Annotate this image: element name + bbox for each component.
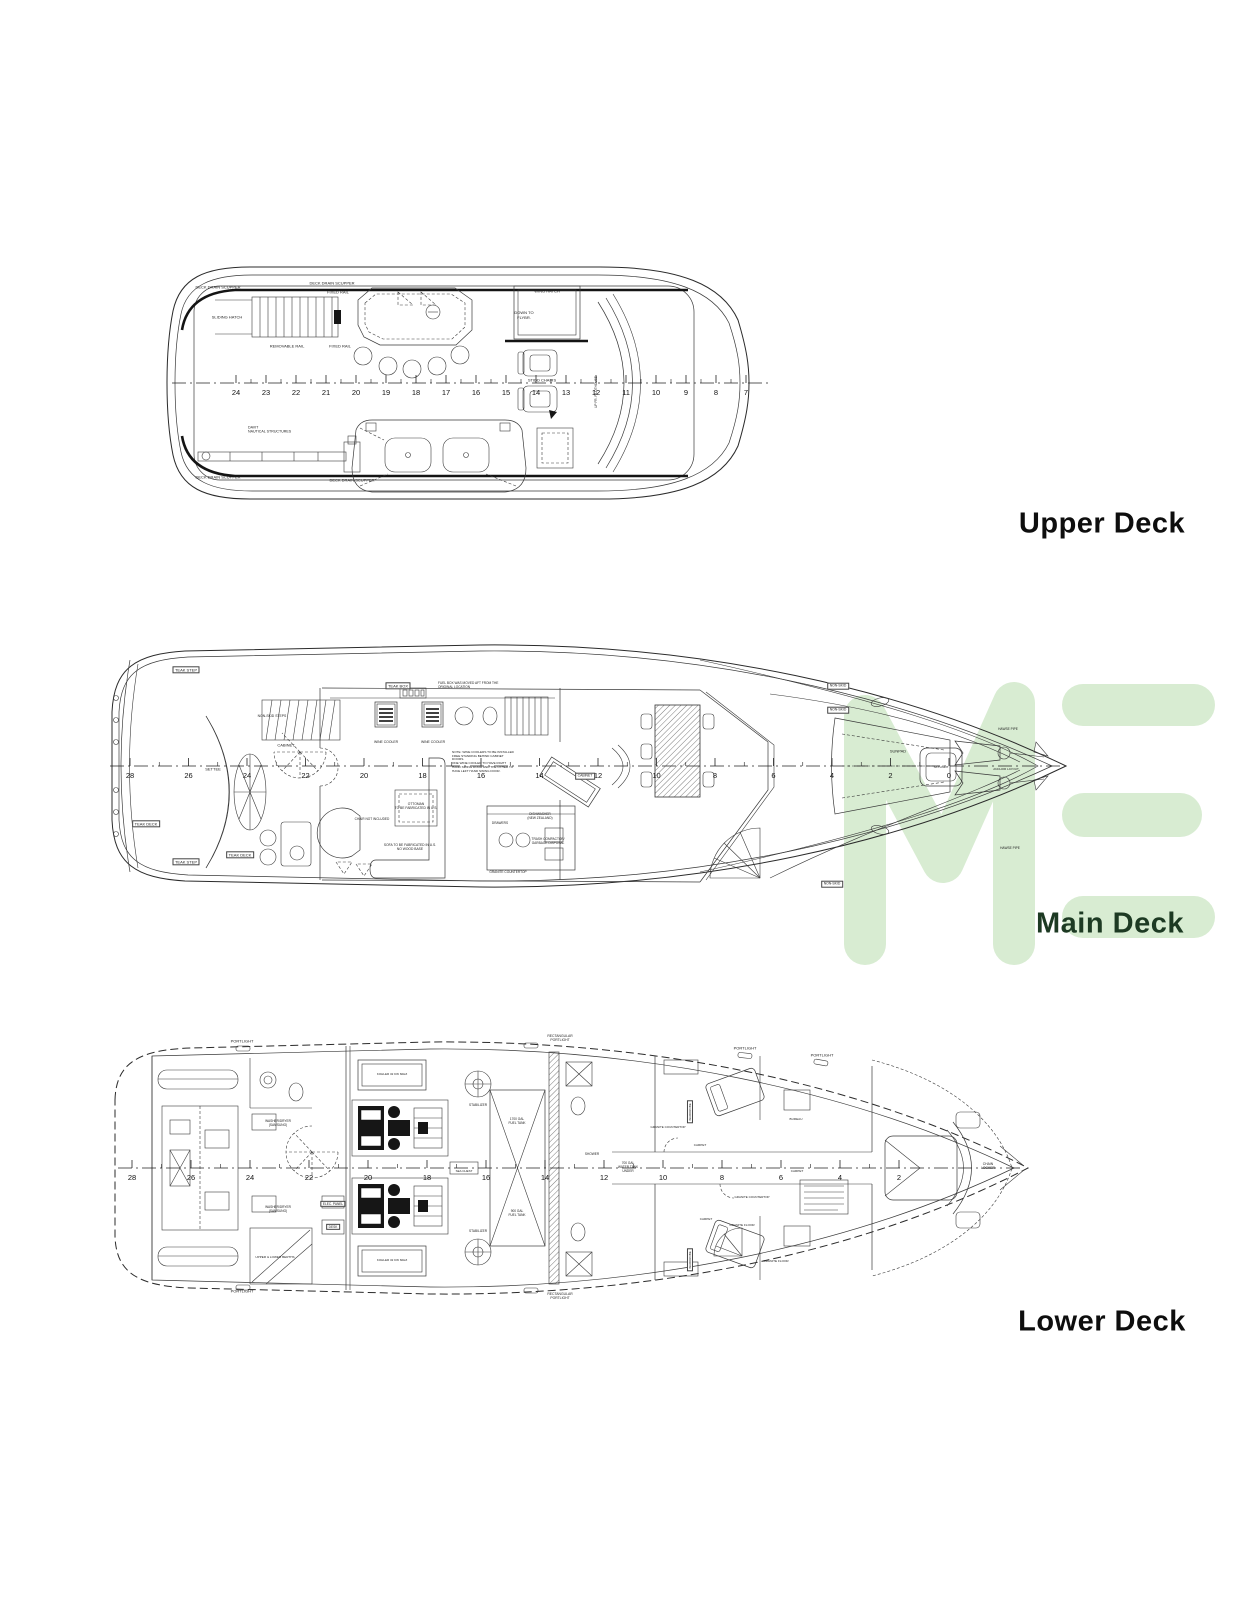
annotation-label: HAWSE PIPE [1000, 847, 1020, 851]
annotation-label: PORTLIGHT [734, 1047, 757, 1052]
annotation-label: SETTEE [205, 768, 221, 773]
annotation-label: BUREAU [790, 1118, 803, 1122]
annotation-label: GRANITE COUNTERTOP [489, 871, 526, 875]
annotation-label: PORTLIGHT [231, 1290, 254, 1295]
annotation-label: STIDD CHAIRS [528, 379, 556, 384]
annotation-label: CARPET [694, 1144, 707, 1148]
annotation-label: NON-SKID [827, 707, 849, 714]
annotation-label: TEAK BOX [385, 682, 410, 689]
annotation-label: DECK DRAIN SCUPPER [195, 286, 240, 291]
annotation-label: DECK DRAIN SCUPPER [309, 282, 354, 287]
upper-deck-title: Upper Deck [1019, 508, 1185, 541]
annotation-label: UP FR. PILOTHOUSE [595, 376, 599, 408]
annotation-label: TEAK DECK [226, 851, 254, 858]
annotation-label: SHOWER [585, 1153, 599, 1157]
annotation-label: TRASH COMPACTOR/ GARBAGE DISPOSAL [532, 838, 565, 846]
annotation-label: TEAK STEP [172, 858, 199, 865]
annotation-label: GRANITE COUNTERTOP [734, 1196, 769, 1200]
annotation-label: 1700 GAL FUEL TANK [508, 1118, 525, 1126]
annotation-label: FIXED RAIL [329, 345, 351, 350]
annotation-label: CABINET [575, 773, 595, 780]
deck-plan-page: 242322212019181716151413121110987 282624… [0, 0, 1250, 1619]
annotation-label: DESK [326, 1224, 340, 1230]
annotation-label: 900 GAL FUEL TANK [508, 1210, 525, 1218]
annotation-label: CARPET [700, 1218, 713, 1222]
lower-deck-title: Lower Deck [1018, 1306, 1186, 1339]
annotation-label: NON-SKID STEPS [258, 714, 287, 718]
annotation-label: UPPER & LOWER BERTHS [255, 1256, 294, 1260]
annotation-label: DAVIT NAUTICAL STRUCTURES [248, 426, 291, 435]
annotation-label: CARPET [791, 1170, 804, 1174]
annotation-label: STABILIZER [469, 1104, 487, 1108]
annotation-label: WARDROBE [687, 1249, 693, 1272]
annotation-label: ANCHOR LAYOUT [993, 768, 1019, 772]
annotation-label: FUEL BOX WAS MOVED AFT FROM THE ORIGINAL… [438, 682, 498, 690]
annotation-label: KOHLER 32 KW 60HZ [377, 1259, 407, 1263]
annotation-label: SKYLIGHT [934, 766, 949, 770]
annotation-label: WASHER/DRYER (SAMSUNG) [265, 1120, 291, 1128]
annotation-label: TEAK STEP [172, 666, 199, 673]
annotation-label: TEAK DECK [132, 820, 160, 827]
annotation-label: FIXED RAIL [327, 291, 349, 296]
annotation-label: OTTOMAN TO BE FABRICATED IN U.S. [395, 803, 438, 811]
annotation-label: GRANITE FLOOR [729, 1224, 754, 1228]
annotation-label: CHAIR NOT INCLUDED [355, 818, 390, 822]
annotation-label: CABINET [277, 744, 294, 749]
annotation-label: 700 GAL WATER TANK UNDER [618, 1162, 638, 1174]
annotation-label: STABILIZER [469, 1230, 487, 1234]
annotation-label: DECK DRAIN SCUPPER [195, 476, 240, 481]
annotation-label: ELEC. PANEL [320, 1201, 345, 1207]
annotation-label: RECTANGULAR PORTLIGHT [547, 1292, 572, 1300]
annotation-label: SLIDING HATCH [212, 316, 243, 321]
annotation-label: NON-SKID [821, 881, 843, 888]
annotation-label: HAWSE PIPE [998, 728, 1018, 732]
annotation-label: NOTE: WINE COOLERS TO BE INSTALLED FREE … [452, 751, 514, 773]
annotation-label: REMOVABLE RAIL [270, 345, 305, 350]
annotation-label: GRANITE COUNTERTOP [650, 1126, 685, 1130]
annotation-label: CHAIN LOCKER [981, 1162, 995, 1170]
annotation-label: DISHWASHER (NEW ZEALAND) [527, 813, 552, 821]
main-deck-title: Main Deck [1036, 908, 1184, 941]
annotation-label: NON-SKID [827, 683, 849, 690]
annotation-label: WINE COOLER [421, 740, 445, 744]
annotation-label: WASHER/DRYER (SAMSUNG) [265, 1206, 291, 1214]
annotation-label: WARDROBE [687, 1101, 693, 1124]
annotation-label: PORTLIGHT [811, 1054, 834, 1059]
annotation-label: WING HATCH [534, 290, 559, 295]
annotation-label: SEA CHEST [456, 1170, 473, 1174]
annotation-label: GRANITE FLOOR [763, 1260, 788, 1264]
annotation-label: PORTLIGHT [231, 1040, 254, 1045]
annotation-label: DOWN TO FLYBR. [514, 311, 533, 321]
annotation-label: DRAWERS [492, 822, 508, 826]
annotation-label: RECTANGULAR PORTLIGHT [547, 1034, 572, 1042]
annotation-label: SUNPAD [890, 750, 906, 755]
annotation-label: SOFA TO BE FABRICATED IN U.S. NO WOOD BA… [384, 844, 436, 852]
annotation-label: WINE COOLER [374, 740, 398, 744]
annotation-label: DECK DRAIN SCUPPER [329, 479, 374, 484]
annotation-label: KOHLER 32 KW 60HZ [377, 1073, 407, 1077]
annotation-layer: DECK DRAIN SCUPPERDECK DRAIN SCUPPERFIXE… [0, 0, 1250, 1619]
